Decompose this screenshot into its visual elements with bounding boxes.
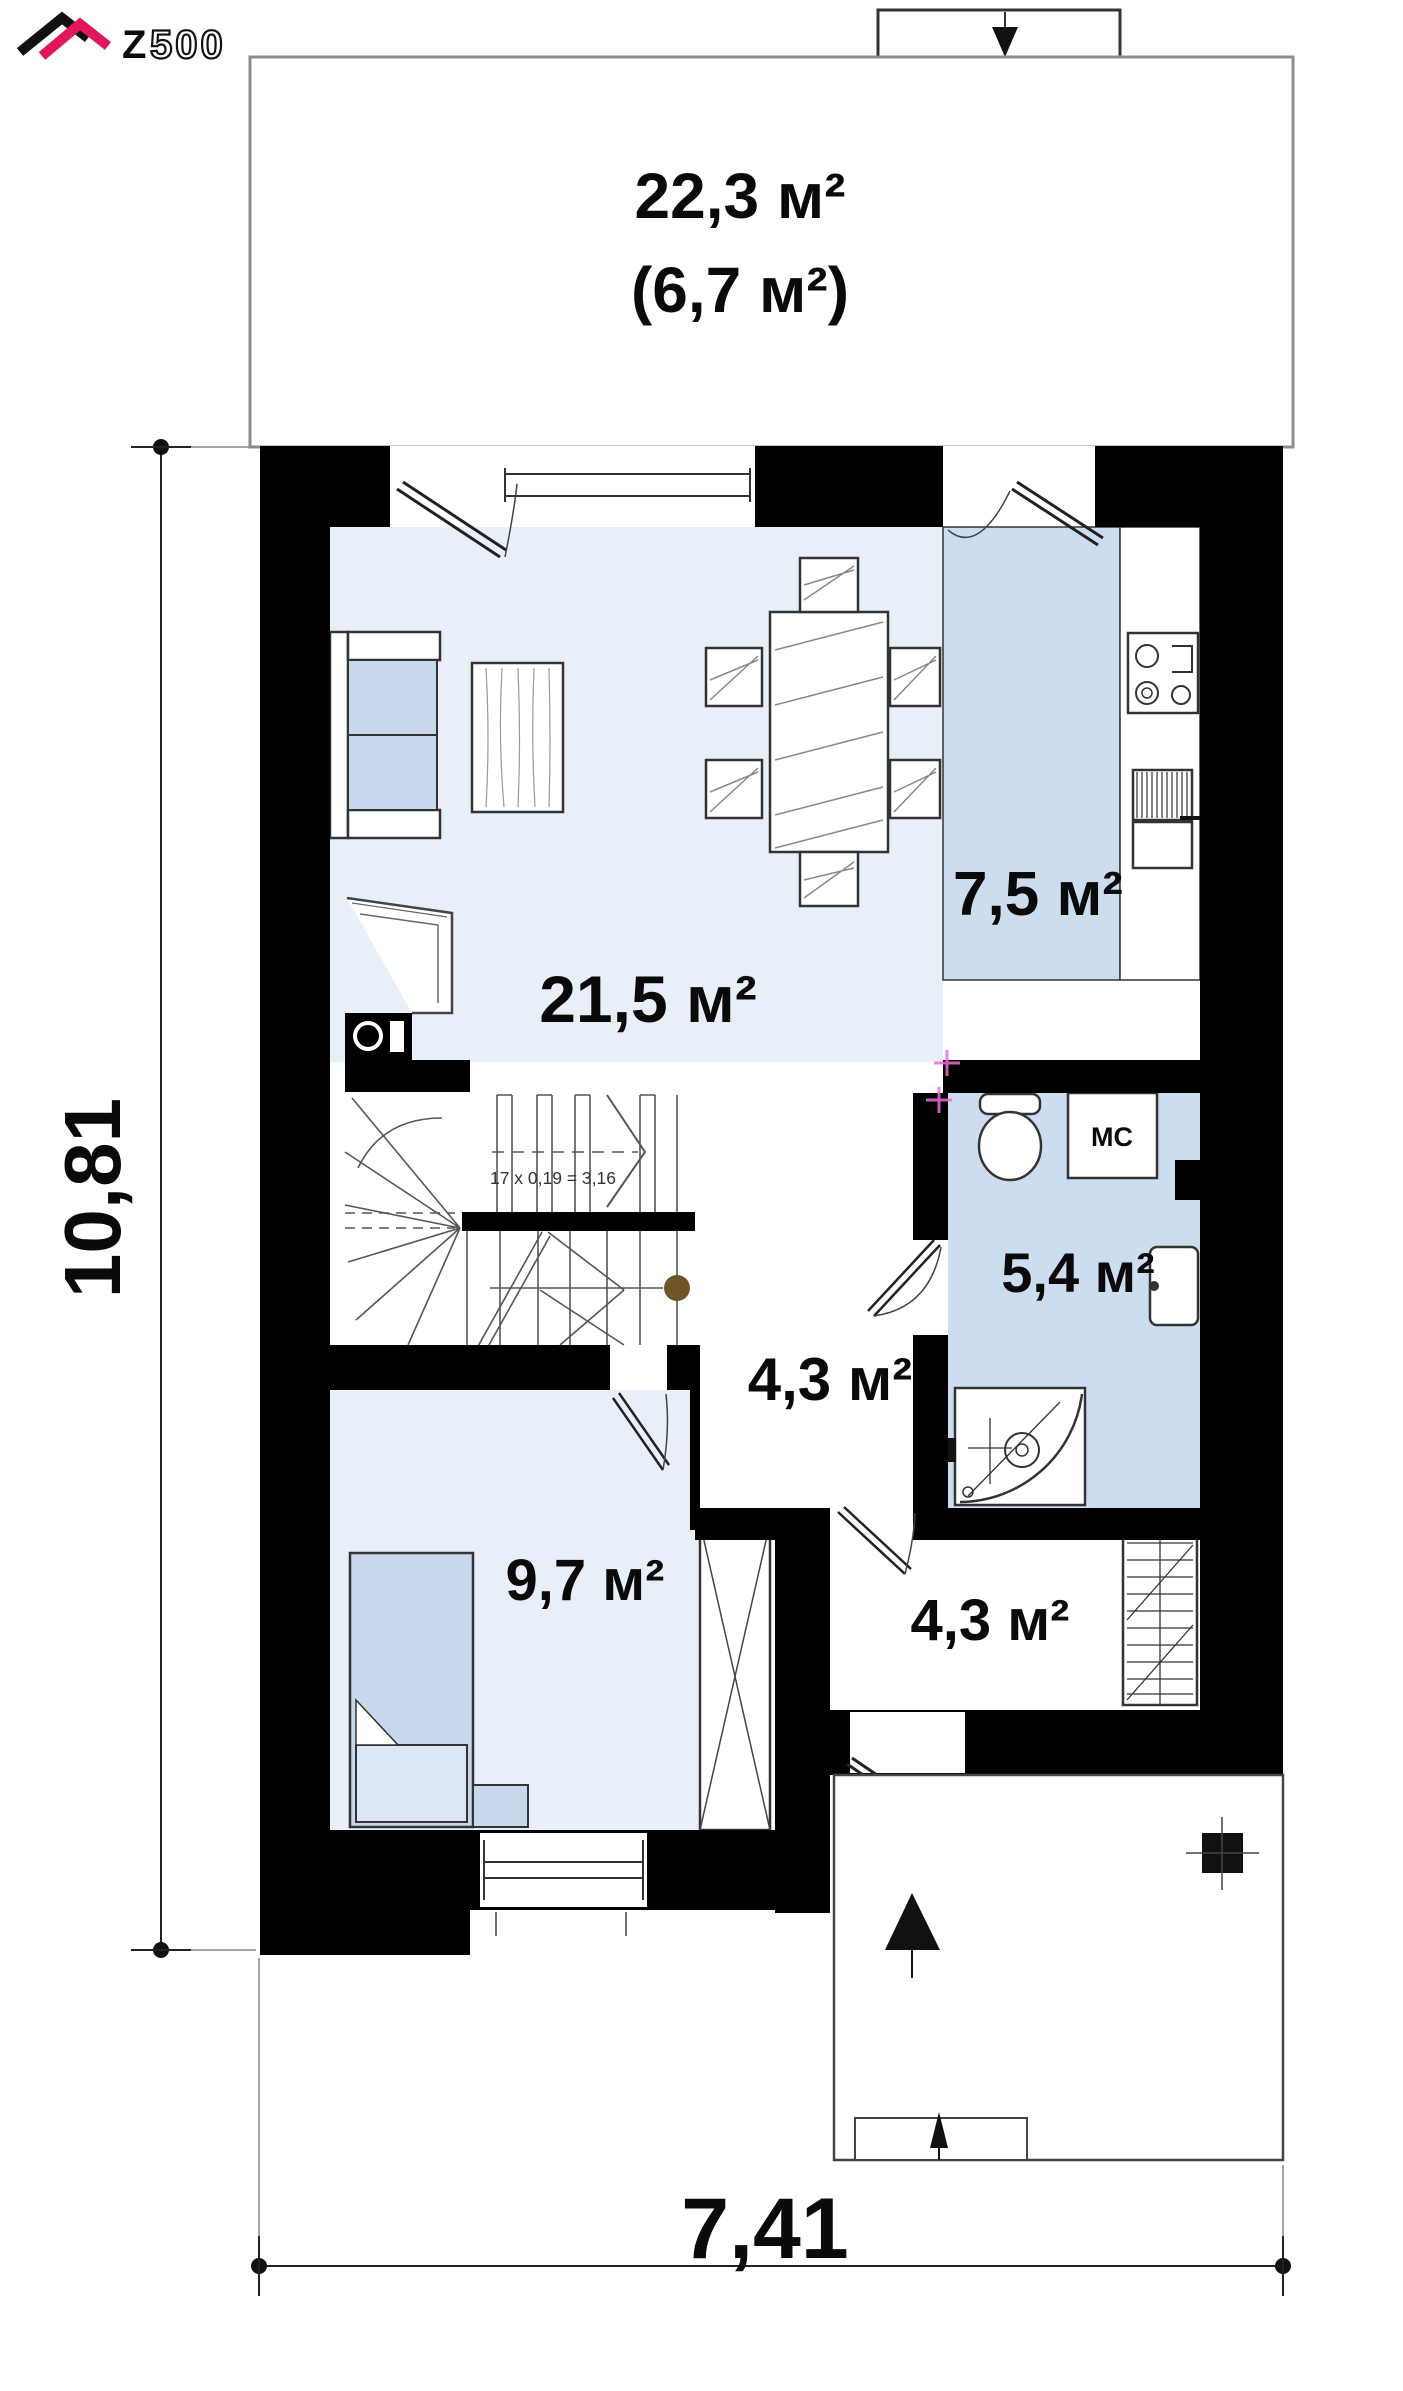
wardrobe: [700, 1523, 770, 1830]
door-opening: [943, 450, 1095, 524]
wall-segment: [260, 446, 330, 1910]
wall-segment: [775, 1508, 830, 1913]
shower-cabin: [944, 1388, 1085, 1505]
kitchen-area-label: 7,5 м²: [953, 860, 1123, 929]
stair-newel-dot: [664, 1275, 690, 1301]
wall-segment: [917, 1508, 1200, 1540]
stair-landing-wall: [462, 1212, 695, 1231]
washing-machine-label: МС: [1091, 1122, 1133, 1152]
attic-outline: 22,3 м² (6,7 м²): [250, 57, 1293, 447]
floor-plan-canvas: Z 500 22,3 м² (6,7 м²): [0, 0, 1403, 2391]
entrance-door-opening: [850, 1712, 965, 1773]
bathroom-area-label: 5,4 м²: [1001, 1241, 1154, 1304]
wall-segment: [695, 1508, 830, 1540]
logo-text-500: 500: [150, 23, 226, 67]
wall-segment: [345, 1060, 470, 1092]
stair-formula-label: 17 x 0,19 = 3,16: [490, 1168, 616, 1188]
bedroom-area-label: 9,7 м²: [506, 1548, 665, 1613]
bed: [350, 1553, 473, 1827]
nightstand: [473, 1785, 528, 1827]
brand-logo: Z 500: [20, 18, 226, 67]
wall-segment: [1200, 446, 1283, 1775]
porch: [834, 1775, 1283, 2160]
attic-area-label: 22,3 м²: [635, 160, 846, 232]
wall-segment: [913, 1335, 948, 1540]
width-dimension-label: 7,41: [681, 2181, 848, 2277]
sofa: [330, 632, 440, 838]
living-room-area-label: 21,5 м²: [539, 962, 757, 1036]
wall-segment: [913, 1093, 948, 1240]
vestibule-radiator: [1123, 1527, 1197, 1705]
washing-machine: МС: [1068, 1093, 1157, 1178]
wall-segment: [1175, 1160, 1200, 1200]
hall-area-label: 4,3 м²: [748, 1346, 912, 1413]
wall-segment: [755, 446, 943, 527]
toilet-icon: [979, 1094, 1041, 1180]
logo-letter-z: Z: [122, 23, 146, 67]
window-opening: [480, 1833, 647, 1907]
window-opening: [390, 450, 755, 524]
wall-segment: [690, 1390, 700, 1530]
vestibule-area-label: 4,3 м²: [911, 1588, 1070, 1653]
attic-area-secondary-label: (6,7 м²): [631, 254, 849, 326]
kitchen-counter-strip: [1120, 527, 1200, 980]
stove-icon: [1128, 633, 1198, 713]
coffee-table: [472, 663, 563, 812]
wall-segment: [667, 1345, 700, 1390]
chimney-box: [878, 10, 1120, 57]
floor-plan-page: Z 500 22,3 м² (6,7 м²): [0, 0, 1403, 2391]
dimension-depth: 10,81: [48, 439, 256, 1958]
bathroom-radiator: [1149, 1247, 1198, 1325]
depth-dimension-label: 10,81: [48, 1098, 137, 1298]
wall-segment: [330, 1345, 610, 1390]
wall-segment: [943, 1060, 1200, 1093]
